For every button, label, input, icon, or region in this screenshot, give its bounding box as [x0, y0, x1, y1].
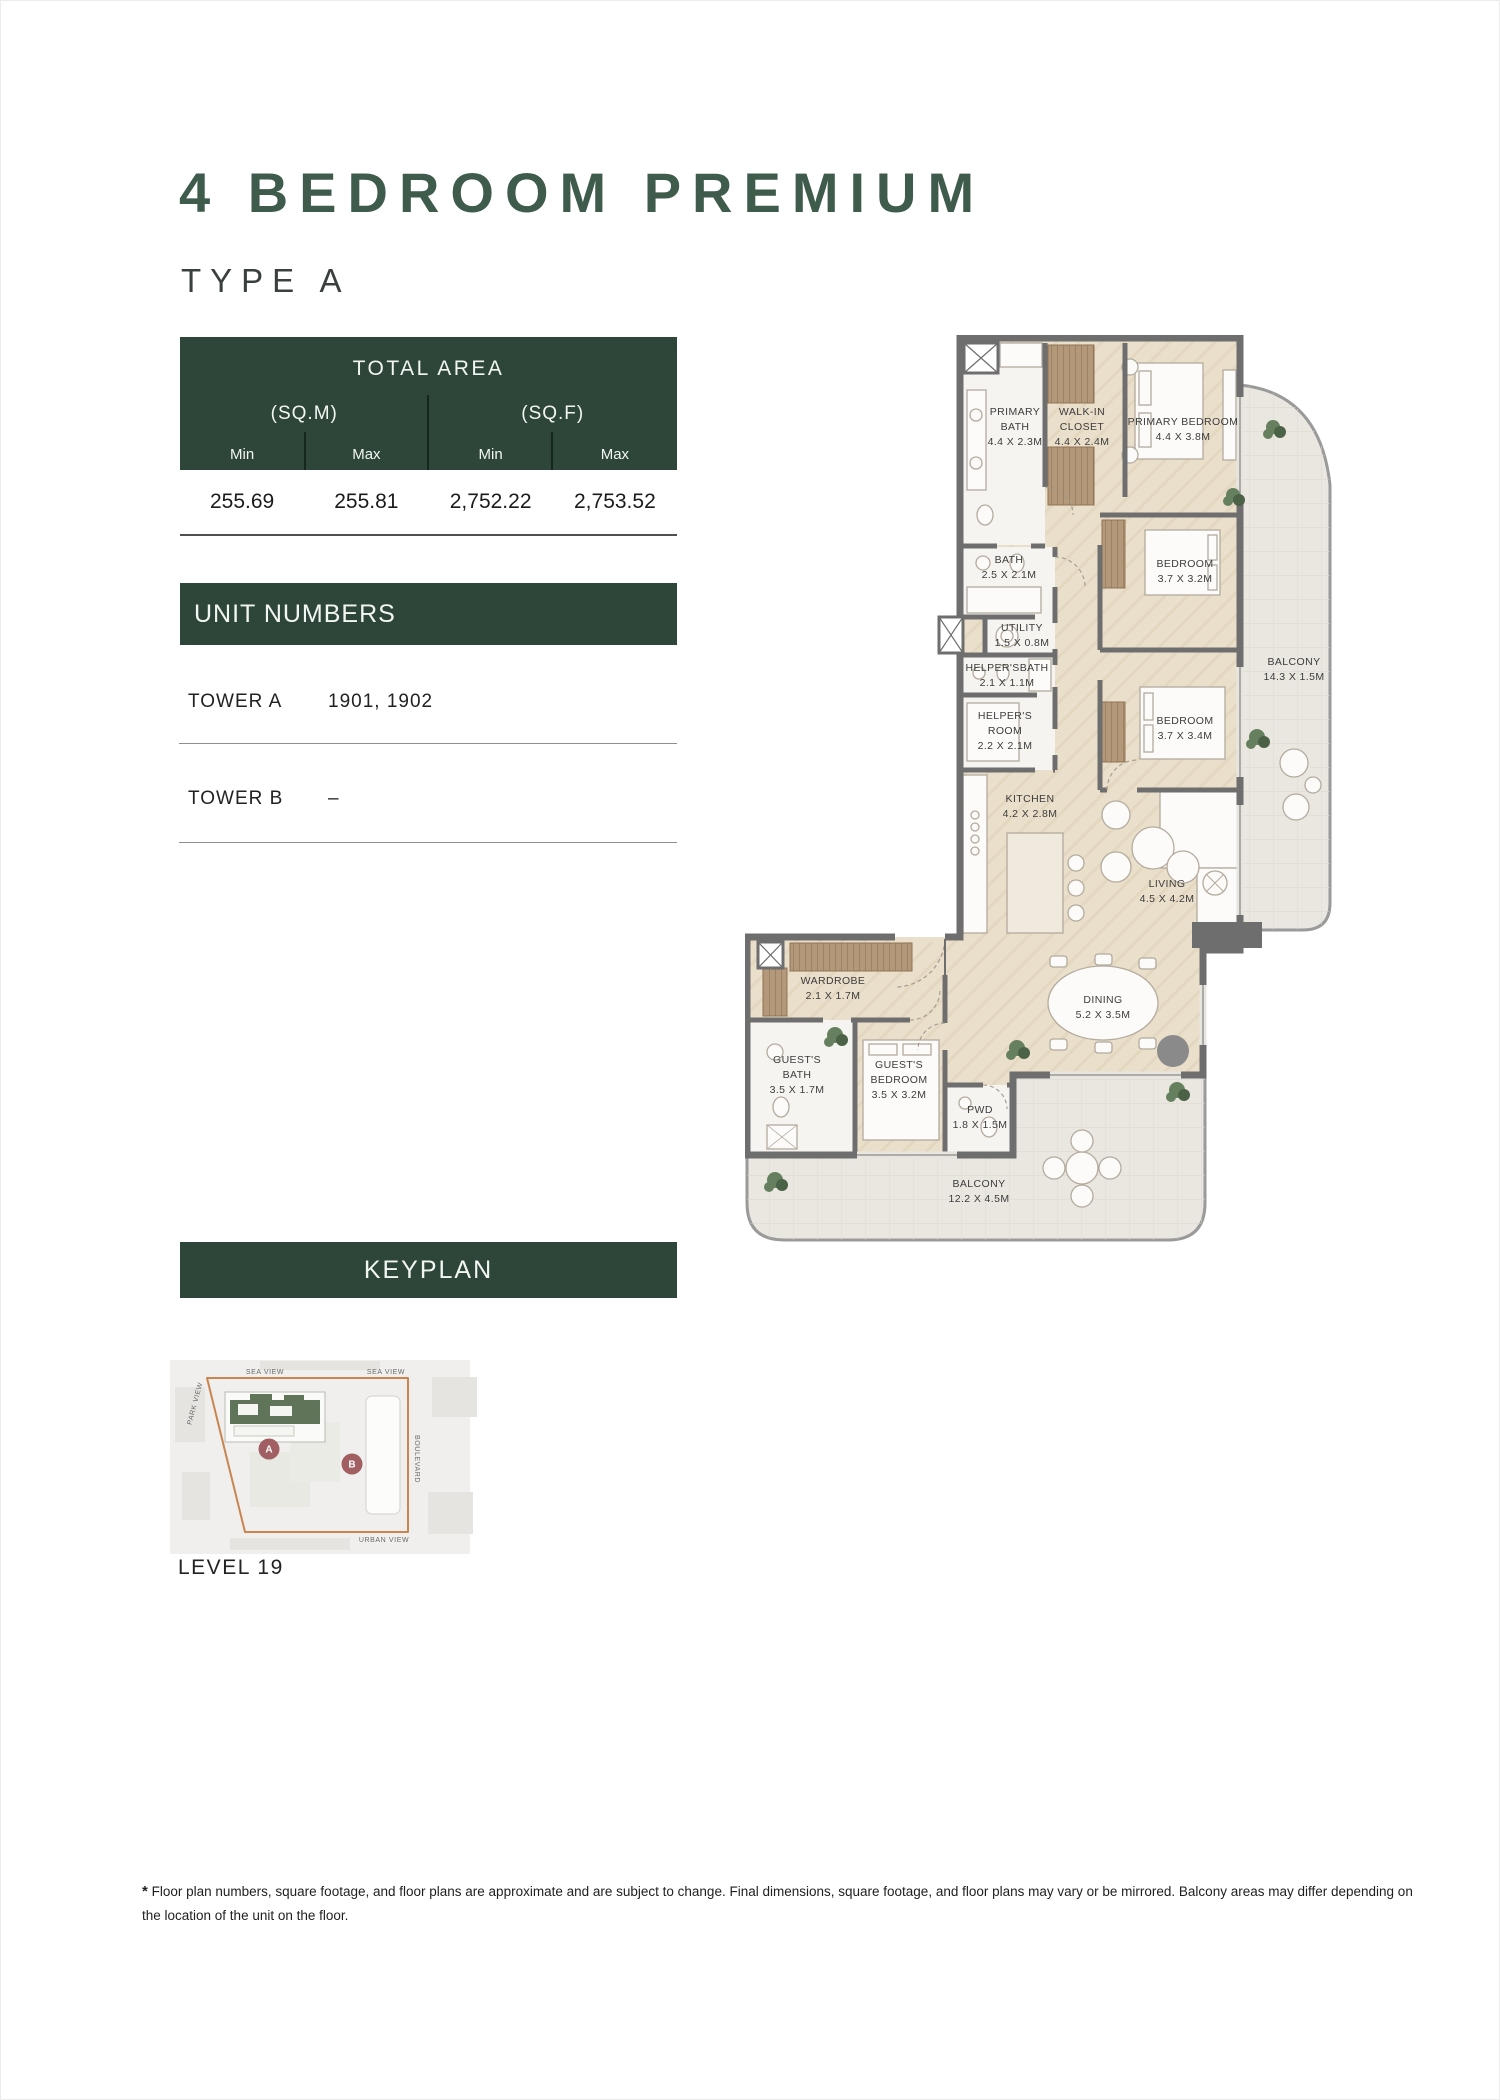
total-area-values: 255.69 255.81 2,752.22 2,753.52 [180, 470, 677, 536]
keyplan-banner: KEYPLAN [180, 1242, 677, 1298]
boulevard-strip [366, 1396, 400, 1514]
room-label: GUEST'SBEDROOM3.5 X 3.2M [870, 1059, 927, 1101]
keyplan-map: AB SEA VIEWSEA VIEWPARK VIEWBOULEVARDURB… [170, 1352, 490, 1562]
wall-chunk [1192, 922, 1262, 948]
tower-badge-label: A [265, 1445, 272, 1456]
total-area-table: TOTAL AREA (SQ.M) (SQ.F) Min Max Min Max… [180, 337, 677, 536]
unit-numbers-banner: UNIT NUMBERS [180, 583, 677, 645]
floorplan: PRIMARYBATH4.4 X 2.3MWALK-INCLOSET4.4 X … [745, 335, 1345, 1245]
keyplan-label: SEA VIEW [367, 1369, 405, 1376]
value-sqf-max: 2,753.52 [553, 490, 677, 514]
total-area-title: TOTAL AREA [180, 357, 677, 381]
page-subtitle: TYPE A [181, 262, 351, 300]
divider [551, 432, 553, 470]
tower-b-row: TOWER B – [188, 788, 677, 810]
keyplan-label: URBAN VIEW [359, 1537, 409, 1544]
keyplan-label: SEA VIEW [246, 1369, 284, 1376]
total-area-header-banner: TOTAL AREA (SQ.M) (SQ.F) Min Max Min Max [180, 337, 677, 470]
value-sqm-max: 255.81 [304, 490, 428, 514]
col-sqm-max: Max [304, 446, 428, 463]
tower-b-units: – [328, 788, 340, 810]
room-label: WALK-INCLOSET4.4 X 2.4M [1055, 406, 1110, 448]
tower-a-label: TOWER A [188, 691, 328, 713]
divider [427, 395, 429, 470]
brochure-page: 4 BEDROOM PREMIUM TYPE A TOTAL AREA (SQ.… [0, 0, 1500, 2100]
keyplan-level: LEVEL 19 [178, 1556, 284, 1580]
tower-badge-label: B [348, 1460, 355, 1471]
tower-footprint [225, 1392, 325, 1442]
unit-group-sqm: (SQ.M) [180, 403, 429, 425]
value-sqm-min: 255.69 [180, 490, 304, 514]
disclaimer: * Floor plan numbers, square footage, an… [142, 1880, 1422, 1928]
value-sqf-min: 2,752.22 [429, 490, 553, 514]
unit-group-sqf: (SQ.F) [429, 403, 678, 425]
tower-b-label: TOWER B [188, 788, 328, 810]
disclaimer-text: Floor plan numbers, square footage, and … [142, 1884, 1413, 1923]
col-sqm-min: Min [180, 446, 304, 463]
tower-a-row: TOWER A 1901, 1902 [188, 691, 677, 713]
divider [179, 842, 677, 843]
divider [304, 432, 306, 470]
keyplan-label: BOULEVARD [413, 1435, 420, 1483]
col-sqf-min: Min [429, 446, 553, 463]
page-title: 4 BEDROOM PREMIUM [179, 160, 985, 225]
divider [179, 743, 677, 744]
tower-a-units: 1901, 1902 [328, 691, 433, 713]
col-sqf-max: Max [553, 446, 677, 463]
